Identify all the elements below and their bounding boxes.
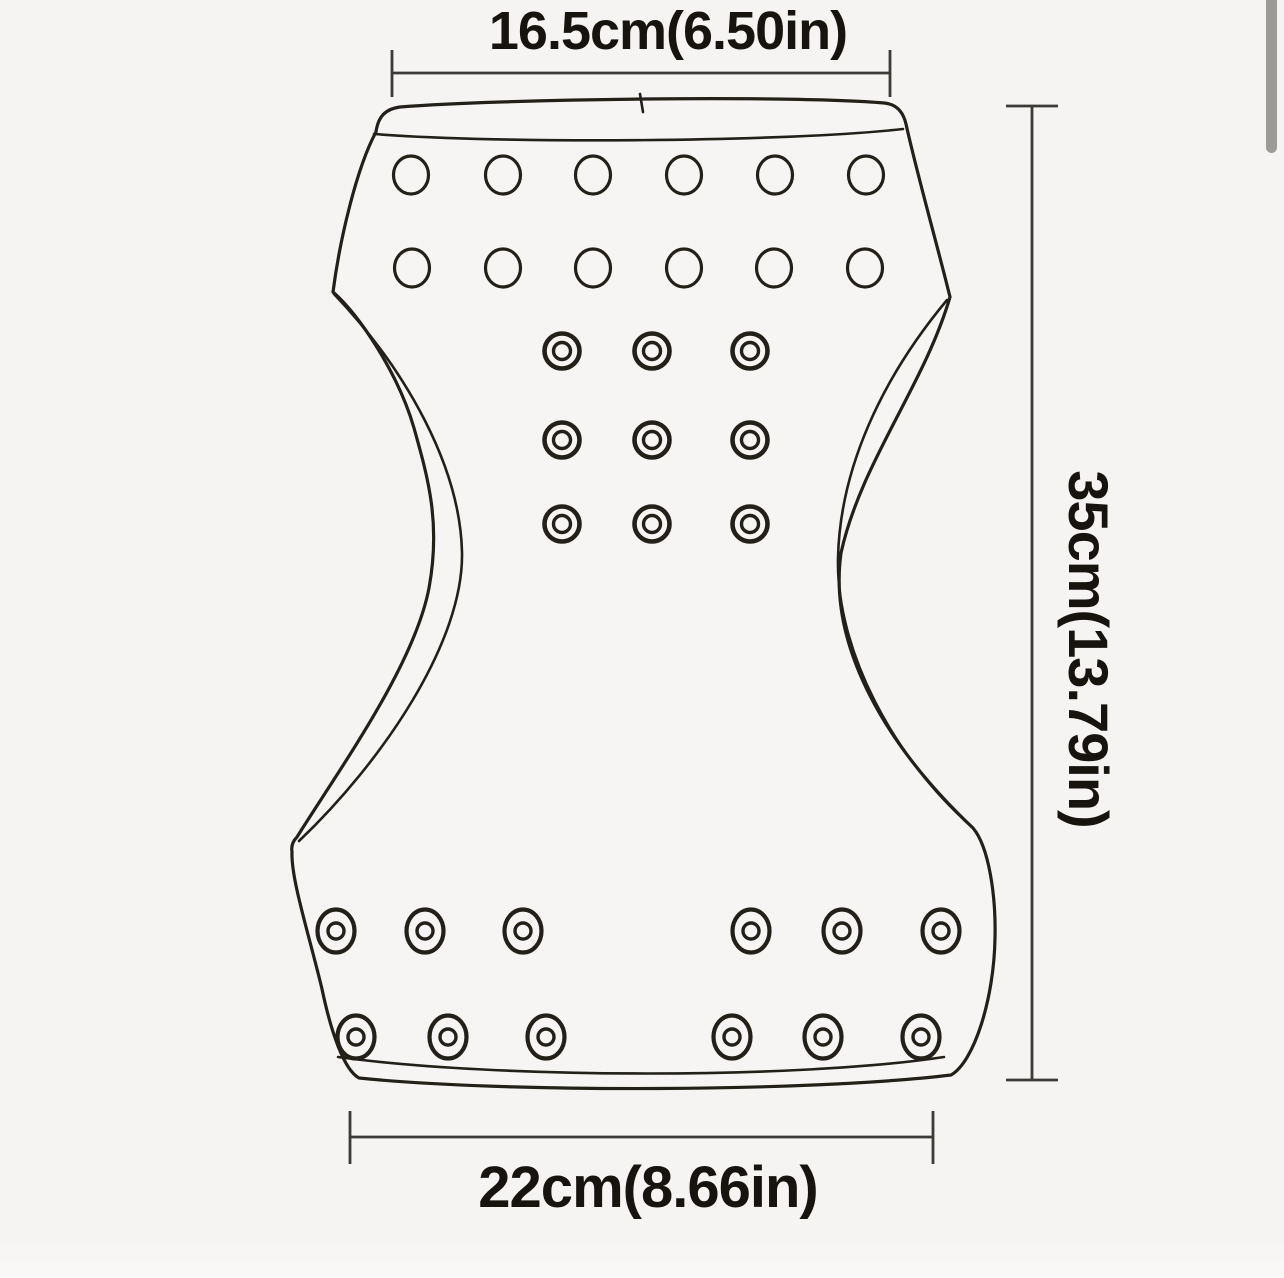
dimension-right-height: 35cm(13.79in)	[1006, 106, 1120, 1080]
dimension-right-label: 35cm(13.79in)	[1057, 470, 1120, 827]
dimension-top-width: 16.5cm(6.50in)	[392, 1, 890, 97]
dimension-top-label: 16.5cm(6.50in)	[489, 1, 847, 61]
diagram-canvas: 16.5cm(6.50in) 35cm(13.79in) 22cm(8.66in…	[0, 0, 1284, 1278]
dimension-diagram: 16.5cm(6.50in) 35cm(13.79in) 22cm(8.66in…	[0, 0, 1284, 1278]
product-outline	[292, 94, 995, 1089]
scrollbar-thumb[interactable]	[1266, 0, 1277, 153]
pad-outer-edge	[292, 99, 995, 1089]
dimension-bottom-label: 22cm(8.66in)	[478, 1155, 817, 1220]
dimension-bottom-width: 22cm(8.66in)	[350, 1111, 933, 1220]
